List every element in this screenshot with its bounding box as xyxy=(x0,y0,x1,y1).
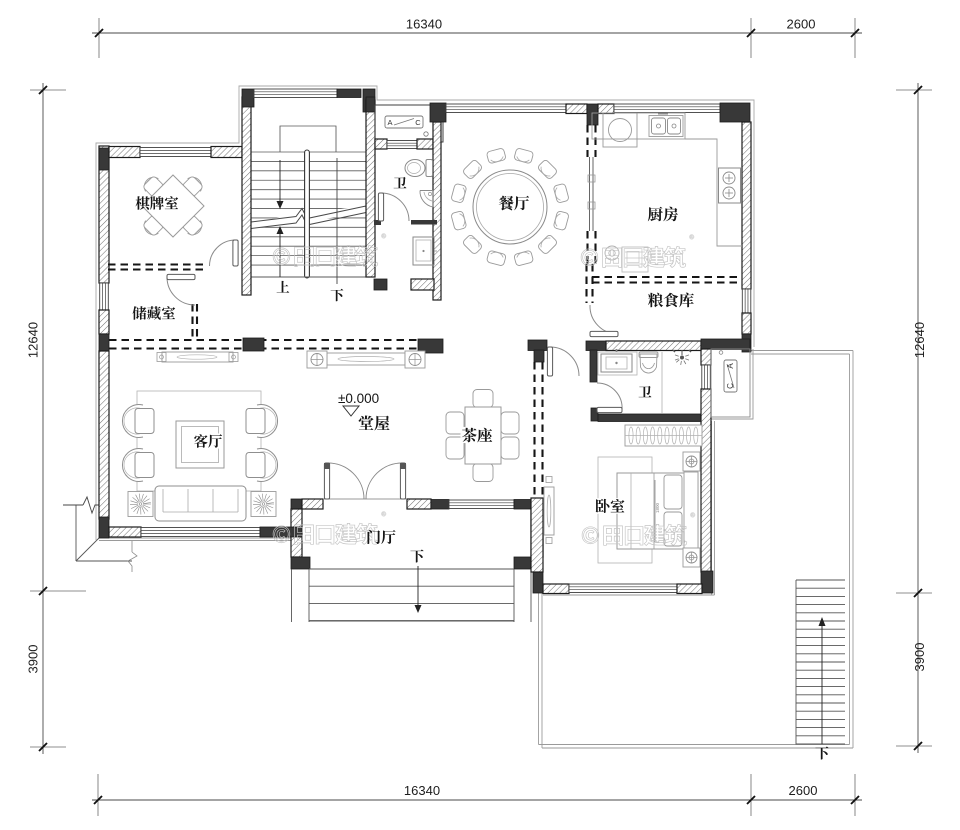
svg-text:A: A xyxy=(387,118,392,127)
svg-text:A: A xyxy=(726,363,735,369)
svg-text:±0.000: ±0.000 xyxy=(338,391,379,406)
svg-text:C: C xyxy=(415,118,421,127)
svg-text:12640: 12640 xyxy=(26,322,41,358)
svg-text:3900: 3900 xyxy=(912,643,927,672)
svg-text:12640: 12640 xyxy=(912,322,927,358)
svg-text:16340: 16340 xyxy=(406,17,442,32)
svg-text:3900: 3900 xyxy=(26,645,41,674)
svg-text:1800: 1800 xyxy=(655,502,660,513)
svg-text:C: C xyxy=(726,383,735,389)
svg-text:2600: 2600 xyxy=(787,17,816,32)
svg-text:2600: 2600 xyxy=(789,783,818,798)
svg-text:16340: 16340 xyxy=(404,783,440,798)
